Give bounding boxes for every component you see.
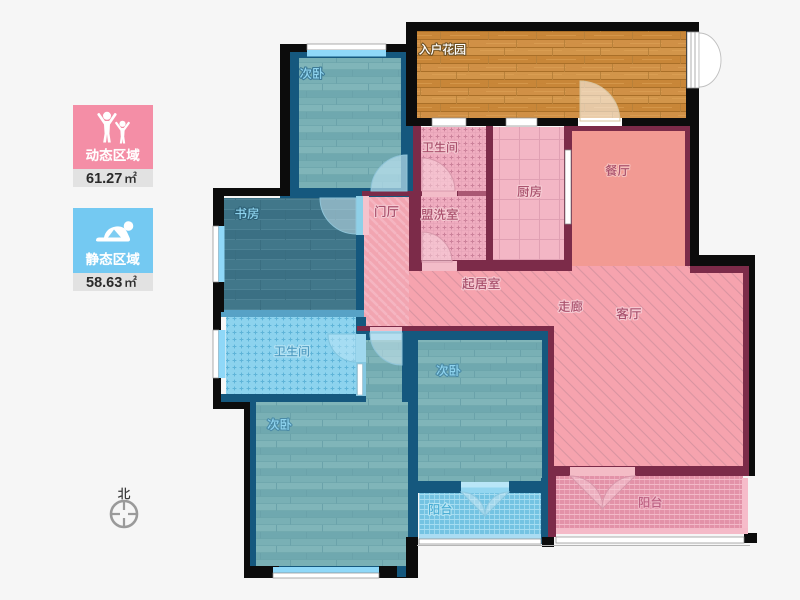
svg-text:61.27: 61.27	[86, 171, 122, 187]
svg-text:58.63: 58.63	[86, 275, 122, 291]
